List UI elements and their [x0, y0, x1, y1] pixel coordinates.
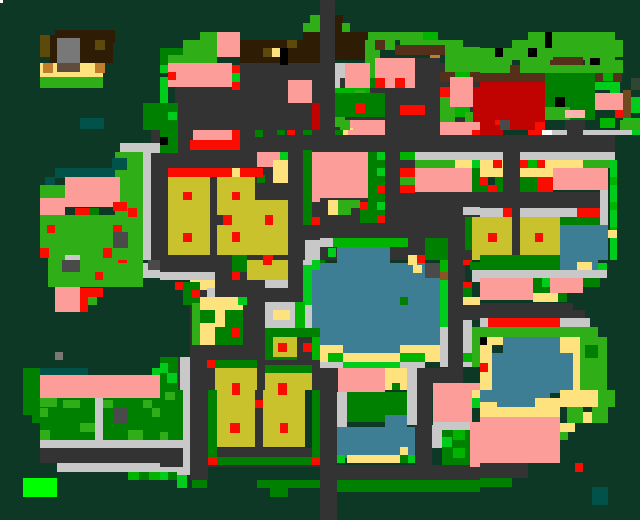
game-minimap-viewport — [0, 0, 640, 520]
game-map-canvas — [0, 0, 640, 520]
